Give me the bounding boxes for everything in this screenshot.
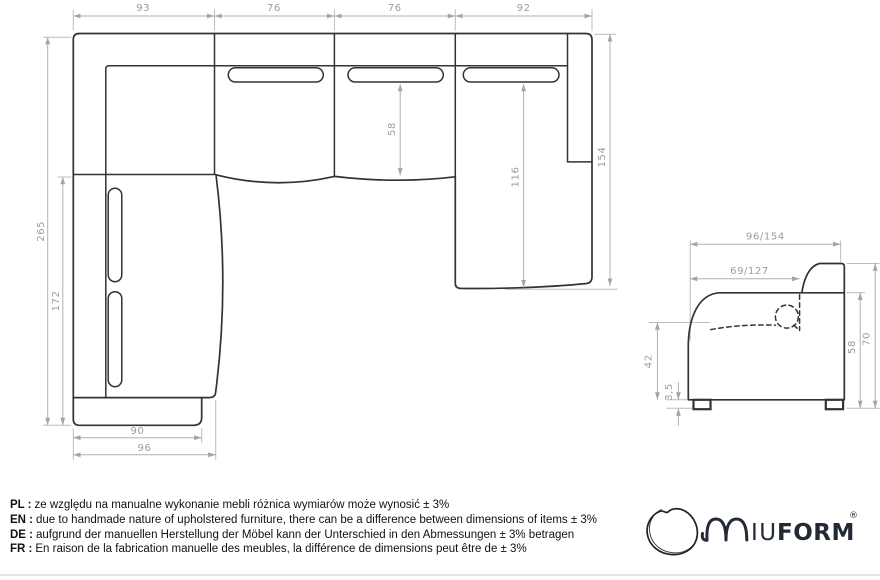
- logo-registered-icon: ®: [849, 511, 858, 521]
- note-en-text: due to handmade nature of upholstered fu…: [36, 514, 597, 526]
- dim-label-right-depth: 154: [597, 147, 608, 168]
- note-pl-text: ze względu na manualne wykonanie mebli r…: [35, 499, 450, 511]
- note-fr: FR :En raison de la fabrication manuelle…: [10, 542, 650, 557]
- sofa-dimension-drawing: 93 76 76 92 265 172 58 116 154 90 96 96/…: [0, 0, 880, 494]
- back-cushion: [463, 68, 559, 82]
- back-cushion-vertical: [108, 292, 122, 387]
- dim-label-left-inner: 172: [51, 291, 62, 312]
- logo-text-form: FORM: [777, 520, 855, 546]
- dim-label-width-1: 93: [136, 3, 150, 14]
- dim-label-chaise-width: 96: [138, 443, 152, 454]
- side-backrest-outline: [688, 264, 844, 400]
- logo-text-iu: IU: [751, 520, 778, 546]
- note-fr-label: FR :: [10, 543, 32, 555]
- dim-label-seat-depth: 58: [387, 122, 398, 136]
- sofa-outline: [73, 34, 592, 426]
- seat-divider-lines: [73, 34, 455, 177]
- back-cushion-vertical: [108, 188, 122, 281]
- dim-label-arm-height: 58: [847, 340, 858, 354]
- dim-label-left-outer: 265: [36, 221, 47, 242]
- dim-label-seat-depth-side: 69/127: [730, 266, 769, 277]
- tolerance-notes: PL :ze względu na manualne wykonanie meb…: [10, 498, 650, 557]
- note-de-label: DE :: [10, 529, 33, 541]
- note-pl: PL :ze względu na manualne wykonanie meb…: [10, 498, 650, 513]
- bottom-divider: [0, 574, 880, 576]
- note-fr-text: En raison de la fabrication manuelle des…: [35, 543, 526, 555]
- note-en: EN :due to handmade nature of upholstere…: [10, 513, 650, 528]
- back-cushion: [228, 68, 323, 82]
- sofa-foot: [826, 400, 843, 409]
- side-view: 96/154 69/127 42 3,5 58 70: [644, 232, 880, 427]
- dim-label-back-height: 70: [861, 332, 872, 346]
- right-armrest-line: [568, 34, 593, 162]
- backrest-inner-line: [106, 66, 568, 398]
- seat-contour-dashed: [711, 325, 776, 330]
- miuform-logo: IU FORM ®: [643, 497, 880, 563]
- dim-label-overall-depth: 96/154: [746, 232, 785, 243]
- dim-label-width-4: 92: [517, 3, 531, 14]
- side-body-outline: [688, 293, 844, 400]
- logo-m-glyph: [702, 519, 747, 540]
- dim-label-width-3: 76: [388, 3, 402, 14]
- technical-drawing-page: { "top_view": { "top_widths": ["93", "76…: [0, 0, 880, 580]
- note-pl-label: PL :: [10, 499, 32, 511]
- sofa-foot: [694, 400, 711, 409]
- cushion-roll-dashed: [775, 305, 798, 328]
- dim-label-leg-height: 3,5: [664, 383, 675, 401]
- note-de: DE :aufgrund der manuellen Herstellung d…: [10, 528, 650, 543]
- logo-bean-icon: [647, 509, 697, 555]
- dim-label-plinth-width: 90: [131, 426, 145, 437]
- backrest-contour-dashed: [794, 295, 800, 331]
- dim-label-width-2: 76: [267, 3, 281, 14]
- back-cushion: [348, 68, 443, 82]
- top-view: 93 76 76 92 265 172 58 116 154 90 96: [36, 3, 618, 460]
- dim-label-chaise-length: 116: [510, 167, 521, 188]
- note-en-label: EN :: [10, 514, 33, 526]
- dim-label-seat-height: 42: [644, 354, 655, 368]
- note-de-text: aufgrund der manuellen Herstellung der M…: [36, 529, 574, 541]
